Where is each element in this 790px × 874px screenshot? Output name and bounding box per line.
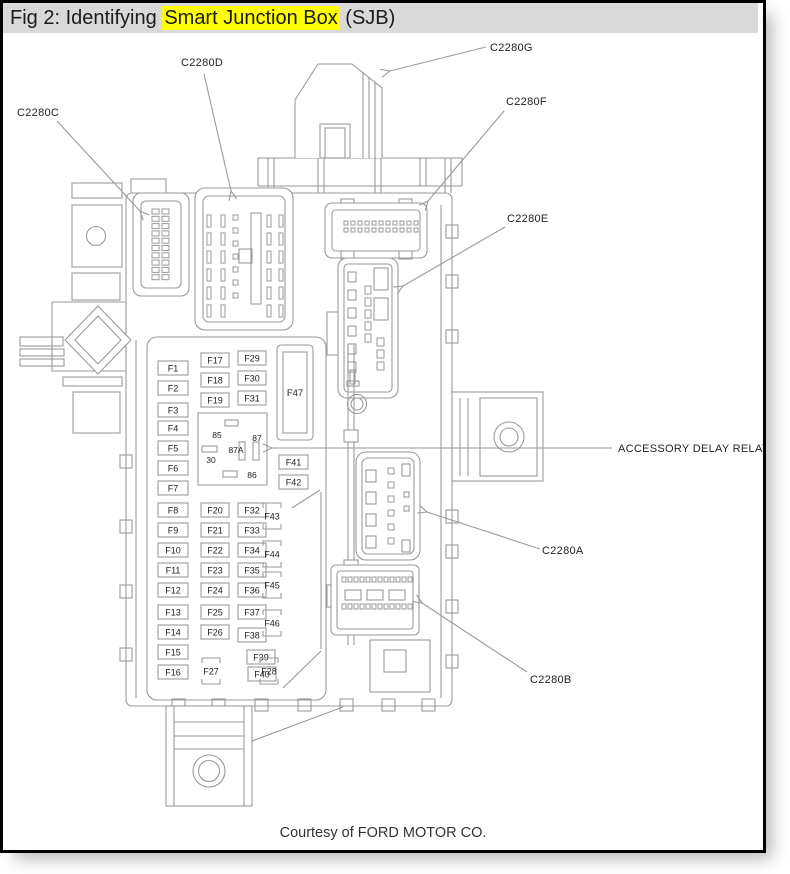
figure-title-suffix: (SJB) [340,7,396,29]
fuse-f14: F14 [158,625,188,639]
fuse-f27: F27 [202,658,220,684]
svg-text:F17: F17 [207,356,223,366]
fuse-f17: F17 [201,353,229,367]
connector-c2280d-shape [195,188,293,330]
fuse-f15: F15 [158,645,188,659]
bottom-features [166,640,430,806]
accessory-delay-relay-shape [452,392,543,481]
svg-text:F28: F28 [261,667,277,677]
svg-text:F35: F35 [244,566,260,576]
sjb-diagram: F1F2F3F4F5F6F7F8F9F10F11F12F13F14F15F16F… [3,3,763,850]
connector-c2280b-shape [327,565,419,635]
callout-c2280d: C2280D [181,57,231,191]
callout-label-c2280g: C2280G [490,42,533,54]
svg-text:F18: F18 [207,376,223,386]
fuse-f9: F9 [158,523,188,537]
fuse-f12: F12 [158,583,188,597]
svg-text:F43: F43 [264,512,280,522]
fuse-f42: F42 [279,475,308,489]
svg-text:F41: F41 [286,458,302,468]
svg-text:F37: F37 [244,608,260,618]
fuse-f11: F11 [158,563,188,577]
svg-text:F3: F3 [168,406,179,416]
fuse-f13: F13 [158,605,188,619]
sjb-diagram-svg: F1F2F3F4F5F6F7F8F9F10F11F12F13F14F15F16F… [3,3,763,850]
svg-text:F2: F2 [168,384,179,394]
svg-text:F9: F9 [168,526,179,536]
svg-text:F7: F7 [168,484,179,494]
svg-text:F4: F4 [168,424,179,434]
fuse-f4: F4 [158,421,188,435]
svg-text:F27: F27 [203,667,219,677]
svg-text:F42: F42 [286,478,302,488]
connector-c2280e-shape [327,258,398,414]
fuse-f33: F33 [238,523,266,537]
callout-c2280a: C2280A [427,512,584,557]
panel-label-30: 30 [206,455,216,465]
svg-text:F34: F34 [244,546,260,556]
figure-panel: F1F2F3F4F5F6F7F8F9F10F11F12F13F14F15F16F… [0,0,766,853]
fuse-f31: F31 [238,391,266,405]
fuse-f1: F1 [158,361,188,375]
fuse-f23: F23 [201,563,229,577]
svg-text:F1: F1 [168,364,179,374]
svg-text:F8: F8 [168,506,179,516]
svg-text:F16: F16 [165,668,181,678]
fuse-f29: F29 [238,351,266,365]
svg-text:F29: F29 [244,354,260,364]
svg-text:F22: F22 [207,546,223,556]
fuse-f38: F38 [238,628,266,642]
connector-c2280g-shape [258,64,462,193]
svg-text:F6: F6 [168,464,179,474]
callout-label-c2280f: C2280F [506,96,547,108]
fuse-f16: F16 [158,665,188,679]
panel-label-87a: 87A [228,445,243,455]
fuse-f26: F26 [201,625,229,639]
svg-text:F24: F24 [207,586,223,596]
panel-label-86: 86 [247,470,257,480]
fuse-f3: F3 [158,403,188,417]
svg-text:F23: F23 [207,566,223,576]
svg-text:F32: F32 [244,506,260,516]
fuse-f24: F24 [201,583,229,597]
fuse-f41: F41 [279,455,308,469]
callout-label-c2280a: C2280A [542,545,584,557]
fuse-f8: F8 [158,503,188,517]
fuse-f36: F36 [238,583,266,597]
figure-title-bar: Fig 2: Identifying Smart Junction Box (S… [3,3,758,33]
svg-text:F15: F15 [165,648,181,658]
fuse-f30: F30 [238,371,266,385]
svg-text:F25: F25 [207,608,223,618]
panel-label-87: 87 [252,433,262,443]
svg-text:F10: F10 [165,546,181,556]
fuse-f37: F37 [238,605,266,619]
fuse-f34: F34 [238,543,266,557]
figure-title-highlight: Smart Junction Box [162,6,339,30]
callout-c2280g: C2280G [390,42,533,71]
fuse-f19: F19 [201,393,229,407]
callout-c2280b: C2280B [422,603,572,686]
figure-title-prefix: Fig 2: Identifying [10,7,162,29]
fuse-f6: F6 [158,461,188,475]
svg-text:F44: F44 [264,550,280,560]
svg-text:F45: F45 [264,581,280,591]
fuse-f2: F2 [158,381,188,395]
callout-label-c2280d: C2280D [181,57,223,69]
svg-text:F19: F19 [207,396,223,406]
fuse-f20: F20 [201,503,229,517]
svg-text:F33: F33 [244,526,260,536]
callout-label-accessory-delay-relay: ACCESSORY DELAY RELAY [618,443,763,455]
fuse-f32: F32 [238,503,266,517]
callout-c2280f: C2280F [428,96,547,201]
fuse-f7: F7 [158,481,188,495]
svg-text:F31: F31 [244,394,260,404]
svg-text:F26: F26 [207,628,223,638]
fuse-f21: F21 [201,523,229,537]
fuse-f39: F39 [247,650,275,664]
courtesy-note: Courtesy of FORD MOTOR CO. [3,825,763,841]
panel-label-f47: F47 [287,388,303,399]
fuse-f10: F10 [158,543,188,557]
callout-label-c2280b: C2280B [530,674,572,686]
fuse-f5: F5 [158,441,188,455]
svg-text:F21: F21 [207,526,223,536]
svg-text:F38: F38 [244,631,260,641]
svg-text:F36: F36 [244,586,260,596]
left-mount-features [20,183,131,433]
svg-text:F5: F5 [168,444,179,454]
fuse-f18: F18 [201,373,229,387]
svg-text:F14: F14 [165,628,181,638]
fuse-f22: F22 [201,543,229,557]
svg-text:F11: F11 [166,566,181,576]
svg-text:F13: F13 [165,608,181,618]
svg-text:F20: F20 [207,506,223,516]
panel-label-85: 85 [212,430,222,440]
svg-text:F30: F30 [244,374,260,384]
fuse-f35: F35 [238,563,266,577]
connector-c2280c-shape [133,193,189,296]
svg-text:F12: F12 [165,586,181,596]
fuse-grid: F1F2F3F4F5F6F7F8F9F10F11F12F13F14F15F16F… [158,351,308,684]
svg-text:F46: F46 [264,619,280,629]
callout-label-c2280e: C2280E [507,213,549,225]
callout-label-c2280c: C2280C [17,107,59,119]
fuse-f25: F25 [201,605,229,619]
